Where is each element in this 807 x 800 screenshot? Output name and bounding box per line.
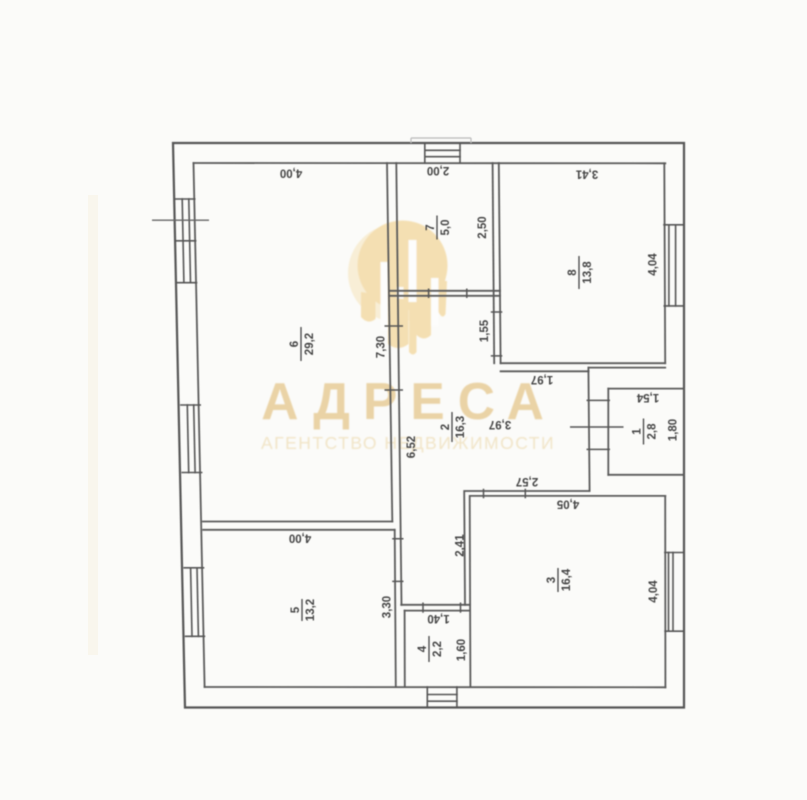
- svg-text:3,97: 3,97: [489, 418, 511, 430]
- svg-text:1,97: 1,97: [531, 373, 553, 385]
- svg-text:АДРЕСА: АДРЕСА: [261, 372, 557, 430]
- svg-text:6: 6: [289, 341, 301, 347]
- svg-text:4,00: 4,00: [280, 167, 302, 179]
- svg-text:2,41: 2,41: [454, 534, 466, 557]
- svg-text:3,41: 3,41: [575, 168, 598, 180]
- svg-text:1: 1: [632, 428, 644, 435]
- svg-text:2: 2: [440, 424, 452, 430]
- svg-text:13,8: 13,8: [582, 261, 594, 284]
- svg-text:1,40: 1,40: [427, 612, 449, 624]
- svg-text:4: 4: [417, 645, 429, 652]
- svg-text:5: 5: [290, 606, 302, 613]
- svg-text:4,04: 4,04: [648, 253, 660, 276]
- svg-text:13,2: 13,2: [305, 599, 317, 621]
- svg-text:6,52: 6,52: [406, 436, 418, 458]
- svg-text:4,00: 4,00: [289, 532, 311, 544]
- svg-text:29,2: 29,2: [304, 333, 316, 355]
- svg-text:16,4: 16,4: [561, 568, 573, 591]
- svg-text:1,60: 1,60: [456, 639, 468, 661]
- svg-text:1,55: 1,55: [479, 319, 491, 342]
- svg-text:2,8: 2,8: [647, 423, 659, 440]
- svg-text:7: 7: [425, 224, 437, 230]
- svg-text:16,3: 16,3: [455, 416, 467, 438]
- svg-text:1,80: 1,80: [668, 419, 680, 441]
- svg-text:3: 3: [546, 577, 558, 583]
- svg-text:2,50: 2,50: [477, 216, 489, 238]
- svg-text:3,30: 3,30: [382, 596, 394, 618]
- svg-text:7,30: 7,30: [376, 336, 388, 358]
- svg-text:8: 8: [567, 269, 579, 276]
- svg-text:5,0: 5,0: [440, 220, 452, 236]
- svg-text:2,57: 2,57: [516, 475, 538, 487]
- svg-text:2,2: 2,2: [432, 641, 444, 657]
- svg-text:1,54: 1,54: [636, 391, 659, 403]
- svg-text:4,04: 4,04: [648, 580, 660, 603]
- svg-text:4,05: 4,05: [556, 498, 579, 510]
- svg-text:2,00: 2,00: [427, 164, 449, 176]
